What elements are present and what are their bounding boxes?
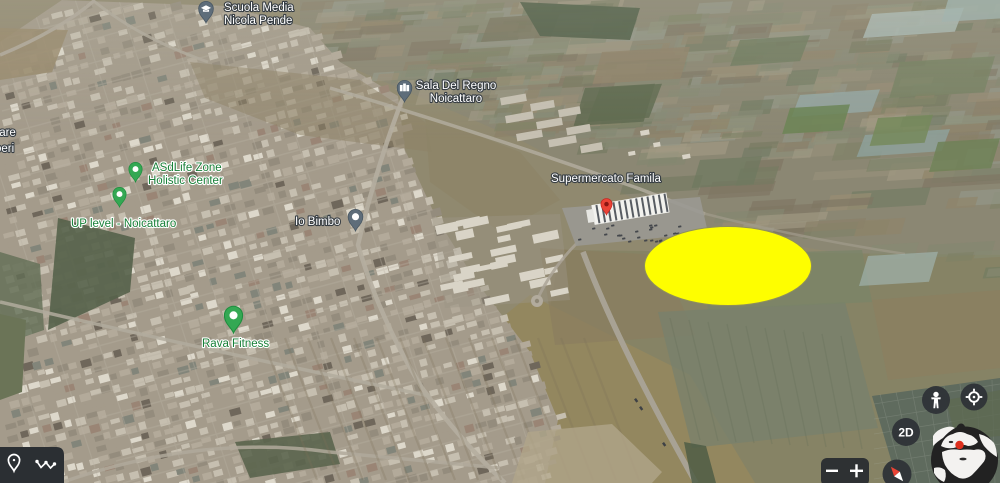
svg-text:oeri: oeri (0, 143, 14, 155)
svg-text:Holistic Center: Holistic Center (148, 175, 223, 187)
svg-text:Supermercato Famila: Supermercato Famila (551, 173, 662, 185)
svg-text:Io Bimbo: Io Bimbo (295, 216, 340, 228)
svg-text:Rava Fitness: Rava Fitness (202, 338, 269, 350)
svg-text:tare: tare (0, 127, 16, 139)
svg-text:Noicattaro: Noicattaro (430, 93, 482, 105)
svg-text:ASdLife Zone: ASdLife Zone (152, 162, 222, 174)
svg-text:2D: 2D (898, 426, 914, 440)
svg-text:Nicola Pende: Nicola Pende (224, 15, 292, 27)
svg-text:Scuola Media: Scuola Media (224, 2, 294, 14)
svg-text:Sala Del Regno: Sala Del Regno (416, 80, 497, 92)
svg-text:UP level - Noicattaro: UP level - Noicattaro (71, 218, 176, 230)
